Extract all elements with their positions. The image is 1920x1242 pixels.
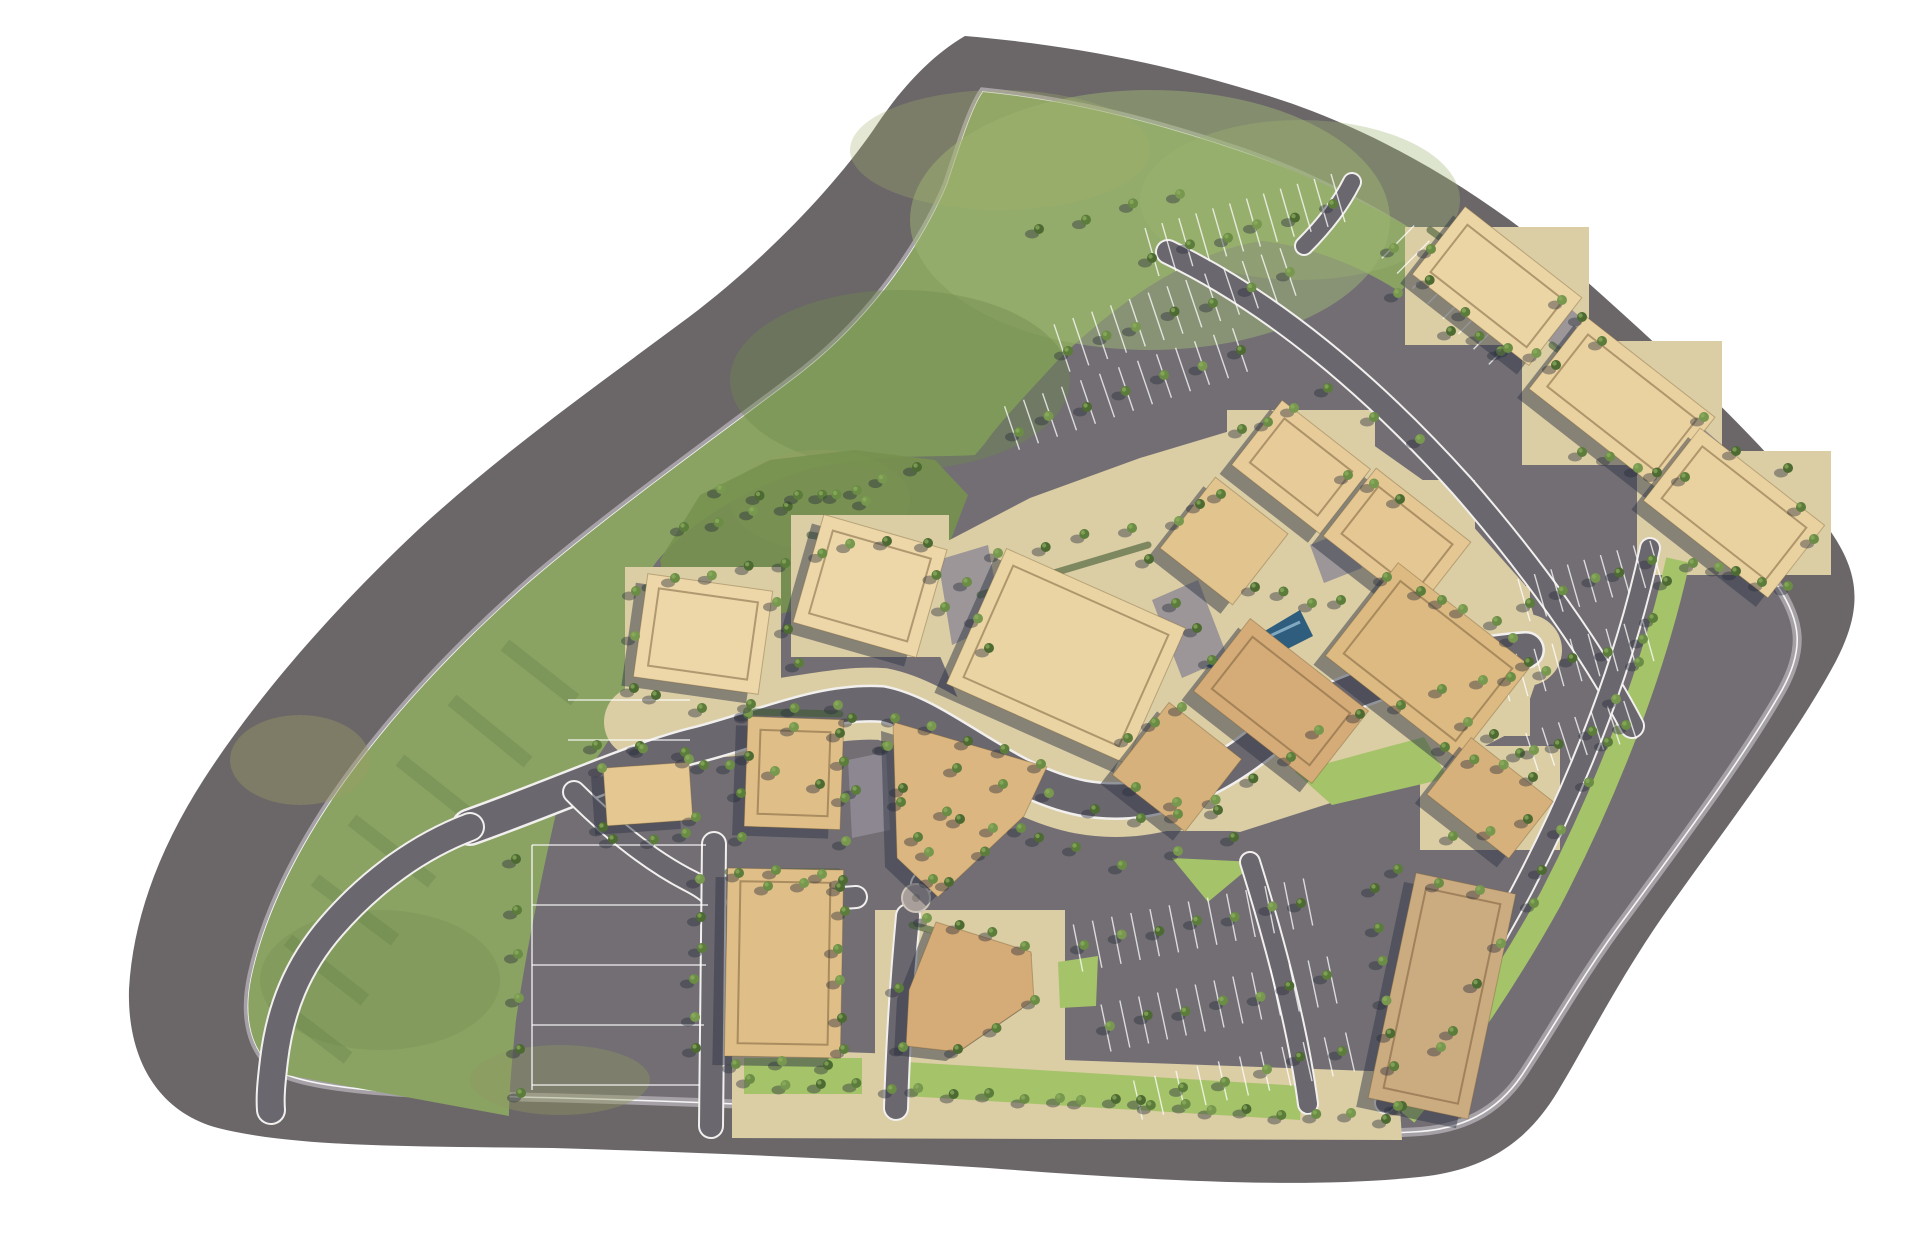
tree-highlight [1529,773,1533,777]
tree-highlight [891,714,895,718]
tree-highlight [1337,596,1341,600]
tree-highlight [1394,289,1398,293]
grass-patch-5 [230,715,370,805]
tree-highlight [1217,490,1221,494]
tree-highlight [1124,734,1128,738]
tree-highlight [1592,574,1596,578]
tree-highlight [1175,517,1179,521]
tree-highlight [1269,903,1273,907]
tree-highlight [1524,815,1528,819]
tree-highlight [914,833,918,837]
tree-highlight [1148,254,1152,258]
tree-highlight [1042,543,1046,547]
tree-highlight [838,1014,842,1018]
tree-highlight [1525,658,1529,662]
tree-highlight [1021,942,1025,946]
tree-highlight [834,945,838,949]
tree-highlight [1344,471,1348,475]
tree-highlight [1784,582,1788,586]
tree-highlight [1700,413,1704,417]
tree-highlight [745,562,749,566]
tree-highlight [1193,917,1197,921]
tree-highlight [964,737,968,741]
tree-highlight [1370,413,1374,417]
tree-highlight [1449,832,1453,836]
tree-highlight [1176,190,1180,194]
tree-highlight [1056,1094,1060,1098]
tree-highlight [833,491,837,495]
tree-highlight [749,507,753,511]
tree-highlight [697,913,701,917]
tree-highlight [1251,583,1255,587]
tree-highlight [842,837,846,841]
tree-highlight [1182,1100,1186,1104]
tree-highlight [989,928,993,932]
tree-highlight [1132,323,1136,327]
tree-highlight [1286,982,1290,986]
tree-highlight [993,1024,997,1028]
tree-highlight [1083,403,1087,407]
tree-highlight [631,632,635,636]
tree-highlight [1396,495,1400,499]
grass-patch-7 [470,1045,650,1115]
tree-highlight [1329,200,1333,204]
tree-highlight [963,578,967,582]
tree-highlight [1035,225,1039,229]
tree-highlight [1173,798,1177,802]
tree-highlight [1538,866,1542,870]
tree-highlight [954,1045,958,1049]
tree-highlight [1174,847,1178,851]
tree-highlight [691,1013,695,1017]
tree-highlight [517,1089,521,1093]
tree-highlight [1784,464,1788,468]
tree-highlight [1263,1066,1267,1070]
tree-highlight [1370,480,1374,484]
tree-highlight [1315,726,1319,730]
tree-highlight [1151,719,1155,723]
tree-highlight [609,835,613,839]
tree-highlight [593,741,597,745]
tree-highlight [738,833,742,837]
tree-highlight [1313,1110,1317,1114]
tree-highlight [1015,428,1019,432]
tree-highlight [923,914,927,918]
tree-highlight [772,866,776,870]
tree-highlight [974,615,978,619]
tree-highlight [1585,779,1589,783]
tree-highlight [824,1061,828,1065]
tree-highlight [1504,344,1508,348]
tree-highlight [1797,503,1801,507]
tree-highlight [1559,587,1563,591]
tree-highlight [735,869,739,873]
tree-highlight [1471,756,1475,760]
tree-highlight [1371,884,1375,888]
tree-highlight [745,752,749,756]
tree-highlight [1290,404,1294,408]
tree-highlight [708,572,712,576]
tree-highlight [1219,997,1223,1001]
tree-highlight [1172,599,1176,603]
tree-highlight [632,587,636,591]
tree-highlight [853,1079,857,1083]
tree-highlight [1417,587,1421,591]
tree-highlight [915,1084,919,1088]
tree-highlight [1296,1053,1300,1057]
tree-highlight [639,745,643,749]
tree-highlight [1243,1105,1247,1109]
tree-highlight [1221,1078,1225,1082]
tree-highlight [945,878,949,882]
tree-highlight [1208,656,1212,660]
tree-highlight [1231,913,1235,917]
tree-highlight [836,976,840,980]
tree-highlight [1449,1027,1453,1031]
tree-highlight [1427,245,1431,249]
tree-highlight [771,767,775,771]
tree-highlight [1383,997,1387,1001]
tree-highlight [1397,701,1401,705]
tree-highlight [1031,996,1035,1000]
tree-highlight [1689,559,1693,563]
tree-highlight [1156,927,1160,931]
tree-highlight [1497,940,1501,944]
tree-highlight [1291,214,1295,218]
tree-highlight [1193,624,1197,628]
tree-highlight [1558,296,1562,300]
tree-highlight [515,994,519,998]
tree-highlight [1622,721,1626,725]
tree-highlight [692,813,696,817]
tree-highlight [852,786,856,790]
tree-highlight [999,780,1003,784]
tree-highlight [1437,1043,1441,1047]
site-plan-canvas [0,0,1920,1242]
tree-highlight [700,761,704,765]
tree-highlight [1526,599,1530,603]
tree-highlight [746,1075,750,1079]
tree-highlight [698,944,702,948]
tree-highlight [1715,563,1719,567]
tree-highlight [681,748,685,752]
tree-highlight [726,761,730,765]
tree-highlight [1426,276,1430,280]
tree-highlight [1237,346,1241,350]
tree-highlight [1390,1062,1394,1066]
tree-highlight [1648,556,1652,560]
tree-highlight [1507,673,1511,677]
tree-highlight [848,714,852,718]
tree-highlight [1209,299,1213,303]
tree-highlight [1555,740,1559,744]
tree-highlight [1179,1084,1183,1088]
tree-highlight [1035,834,1039,838]
tree-highlight [1347,1109,1351,1113]
tree-highlight [512,855,516,859]
tree-highlight [652,691,656,695]
tree-highlight [737,789,741,793]
tree-highlight [1438,685,1442,689]
tree-highlight [1598,337,1602,341]
tree-highlight [1021,1095,1025,1099]
tree-highlight [1103,332,1107,336]
tree-highlight [1543,667,1547,671]
tree-highlight [513,906,517,910]
tree-highlight [1064,347,1068,351]
tree-highlight [840,758,844,762]
tree-highlight [897,798,901,802]
tree-highlight [819,550,823,554]
tree-highlight [1214,806,1218,810]
tree-highlight [846,540,850,544]
tree-highlight [1308,599,1312,603]
tree-highlight [899,1043,903,1047]
grass-patch-3 [730,290,1070,470]
tree-highlight [1435,879,1439,883]
tree-highlight [516,1045,520,1049]
tree-highlight [1604,648,1608,652]
tree-highlight [1122,387,1126,391]
tree-highlight [1045,789,1049,793]
tree-highlight [671,574,675,578]
tree-highlight [795,659,799,663]
tree-highlight [1382,1115,1386,1119]
tree-highlight [599,823,603,827]
tree-highlight [1732,567,1736,571]
tree-highlight [1394,865,1398,869]
tree-highlight [1017,824,1021,828]
tree-highlight [1196,500,1200,504]
tree-highlight [1616,569,1620,573]
tree-highlight [1476,886,1480,890]
tree-highlight [985,644,989,648]
tree-highlight [1182,1008,1186,1012]
tree-highlight [819,491,823,495]
tree-highlight [1171,308,1175,312]
tree-highlight [1118,861,1122,865]
tree-highlight [514,950,518,954]
tree-highlight [1476,332,1480,336]
tree-highlight [1230,833,1234,837]
tree-highlight [690,975,694,979]
tree-highlight [1462,308,1466,312]
tree-highlight [1137,814,1141,818]
tree-highlight [1238,425,1242,429]
tree-highlight [956,815,960,819]
tree-highlight [1810,535,1814,539]
tree-highlight [1147,1101,1151,1105]
tree-highlight [836,883,840,887]
tree-highlight [933,571,937,575]
tree-highlight [1464,718,1468,722]
tree-highlight [1375,924,1379,928]
tree-highlight [717,485,721,489]
south-road-west [711,844,714,1126]
tree-highlight [834,701,838,705]
green-wedge-2 [1058,956,1098,1008]
building-west-trapezoid [603,762,693,826]
tree-highlight [1286,268,1290,272]
tree-highlight [685,755,689,759]
tree-highlight [818,870,822,874]
tree-highlight [913,463,917,467]
grass-patch-2 [850,90,1150,210]
tree-highlight [1072,843,1076,847]
tree-highlight [1037,760,1041,764]
tree-highlight [888,1085,892,1089]
tree-highlight [836,729,840,733]
tree-highlight [883,537,887,541]
tree-highlight [1077,1096,1081,1100]
tree-highlight [782,1081,786,1085]
tree-highlight [1118,931,1122,935]
tree-highlight [1383,573,1387,577]
tree-highlight [1639,635,1643,639]
tree-highlight [756,492,760,496]
tree-highlight [994,549,998,553]
tree-highlight [650,836,654,840]
tree-highlight [1479,676,1483,680]
tree-highlight [1441,743,1445,747]
tree-highlight [1178,703,1182,707]
tree-highlight [1199,362,1203,366]
tree-highlight [953,764,957,768]
tree-highlight [950,1090,954,1094]
tree-highlight [1324,384,1328,388]
tree-highlight [925,848,929,852]
tree-highlight [1287,753,1291,757]
tree-highlight [1253,221,1257,225]
tree-highlight [1174,810,1178,814]
tree-highlight [1128,524,1132,528]
tree-highlight [985,1089,989,1093]
tree-highlight [1224,234,1228,238]
tree-highlight [782,559,786,563]
tree-highlight [1604,738,1608,742]
tree-highlight [1137,1096,1141,1100]
tree-highlight [1106,1022,1110,1026]
tree-highlight [1278,1111,1282,1115]
tree-highlight [899,784,903,788]
tree-highlight [778,1057,782,1061]
tree-highlight [1338,1047,1342,1051]
tree-highlight [928,722,932,726]
tree-highlight [929,875,933,879]
tree-highlight [598,764,602,768]
tree-highlight [1248,284,1252,288]
tree-highlight [841,907,845,911]
tree-highlight [773,598,777,602]
tree-highlight [1552,361,1556,365]
tree-highlight [1634,464,1638,468]
tree-highlight [1297,899,1301,903]
tree-highlight [853,486,857,490]
tree-highlight [1091,805,1095,809]
tree-highlight [884,742,888,746]
tree-highlight [1379,957,1383,961]
tree-highlight [747,700,751,704]
tree-highlight [1473,980,1477,984]
tree-highlight [1264,418,1268,422]
tree-highlight [764,882,768,886]
tree-highlight [1387,1030,1391,1034]
tree-highlight [692,1044,696,1048]
tree-highlight [791,704,795,708]
tree-highlight [840,1045,844,1049]
tree-highlight [1500,761,1504,765]
tree-highlight [1530,746,1534,750]
tree-highlight [1653,469,1657,473]
tree-highlight [1132,783,1136,787]
tree-highlight [1208,1106,1212,1110]
tree-highlight [1635,658,1639,662]
tree-highlight [1732,447,1736,451]
tree-highlight [732,1060,736,1064]
tree-highlight [841,794,845,798]
tree-highlight [943,808,947,812]
tree-highlight [790,723,794,727]
tree-highlight [862,497,866,501]
tree-highlight [1606,453,1610,457]
tree-highlight [1045,412,1049,416]
tree-highlight [1758,578,1762,582]
tree-highlight [1212,796,1216,800]
tree-highlight [1394,1102,1398,1106]
tree-highlight [696,875,700,879]
site-plan-rendering [0,0,1920,1242]
tree-highlight [800,879,804,883]
tree-highlight [1578,313,1582,317]
tree-highlight [1459,605,1463,609]
tree-highlight [1612,695,1616,699]
tree-highlight [1001,745,1005,749]
tree-highlight [1589,727,1593,731]
tree-highlight [794,491,798,495]
tree-highlight [1129,200,1133,204]
tree-highlight [715,519,719,523]
tree-highlight [981,848,985,852]
tree-highlight [1533,349,1537,353]
tree-highlight [1516,749,1520,753]
tree-highlight [1080,941,1084,945]
tree-highlight [682,829,686,833]
tree-highlight [784,625,788,629]
tree-highlight [1509,634,1513,638]
tree-highlight [1160,371,1164,375]
tree-highlight [1487,827,1491,831]
tree-highlight [1663,577,1667,581]
tree-highlight [839,876,843,880]
tree-highlight [1081,530,1085,534]
tree-highlight [1186,241,1190,245]
tree-highlight [1681,473,1685,477]
tree-highlight [1649,614,1653,618]
tree-highlight [630,684,634,688]
tree-highlight [1356,710,1360,714]
building-west-l1 [633,574,772,695]
tree-highlight [816,780,820,784]
tree-highlight [895,984,899,988]
tree-highlight [1250,775,1254,779]
tree-highlight [924,539,928,543]
tree-highlight [956,921,960,925]
tree-highlight [1530,899,1534,903]
tree-highlight [1257,993,1261,997]
building-bottom-slab [724,868,843,1058]
tree-highlight [879,475,883,479]
tree-highlight [1145,555,1149,559]
